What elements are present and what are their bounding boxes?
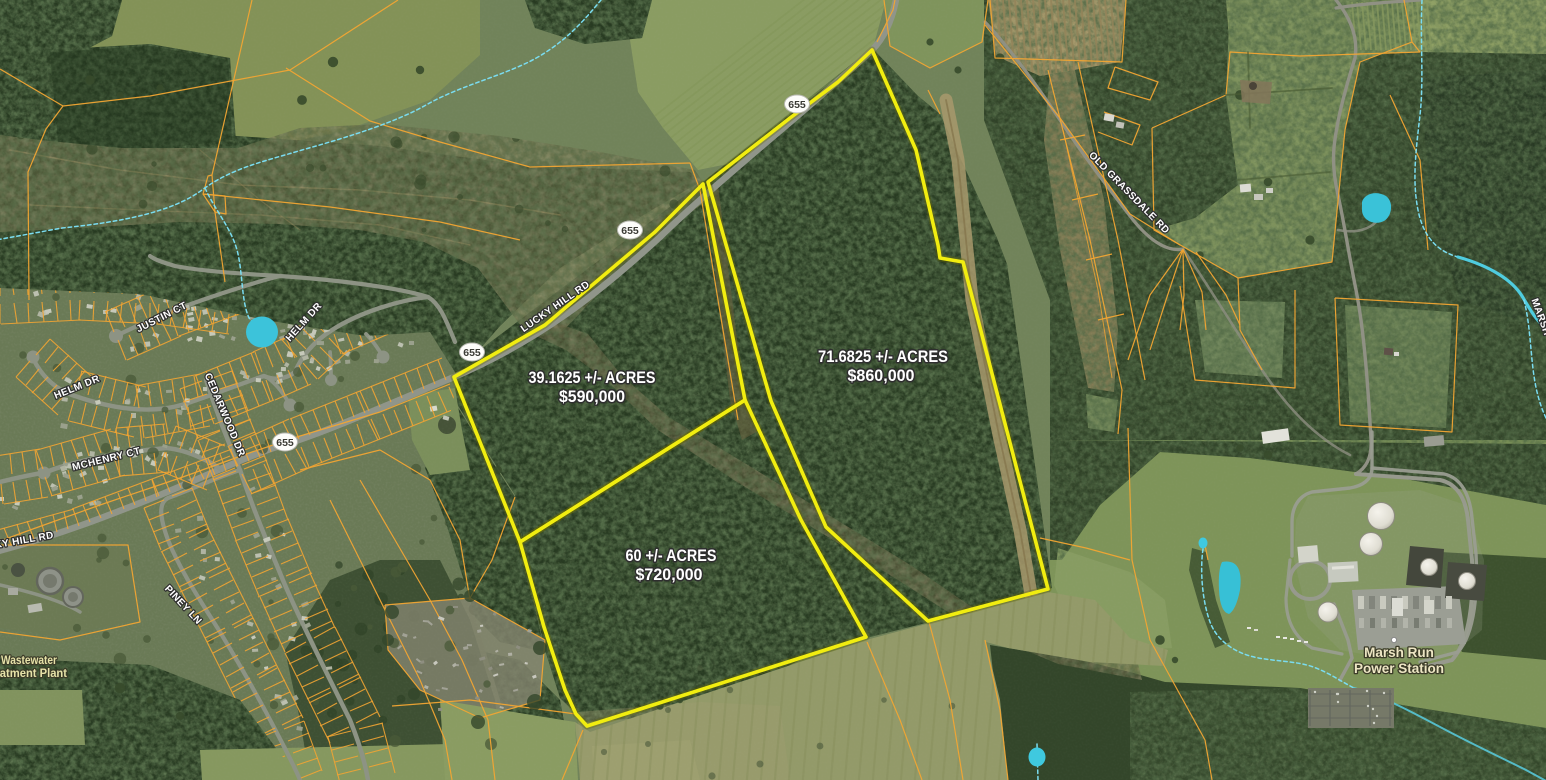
svg-text:655: 655 bbox=[463, 347, 481, 359]
svg-text:$860,000: $860,000 bbox=[848, 367, 915, 385]
svg-text:655: 655 bbox=[621, 225, 639, 237]
svg-text:$590,000: $590,000 bbox=[559, 388, 625, 406]
svg-text:Treatment Plant: Treatment Plant bbox=[0, 666, 67, 680]
svg-text:Wastewater: Wastewater bbox=[1, 653, 57, 667]
svg-text:Power Station: Power Station bbox=[1354, 661, 1444, 676]
svg-text:60 +/- ACRES: 60 +/- ACRES bbox=[626, 547, 717, 565]
svg-text:655: 655 bbox=[788, 99, 806, 111]
svg-text:Marsh Run: Marsh Run bbox=[1364, 645, 1434, 660]
svg-text:655: 655 bbox=[276, 437, 294, 449]
svg-text:39.1625 +/- ACRES: 39.1625 +/- ACRES bbox=[529, 369, 656, 387]
svg-text:$720,000: $720,000 bbox=[636, 566, 703, 584]
svg-text:71.6825 +/- ACRES: 71.6825 +/- ACRES bbox=[818, 348, 948, 366]
